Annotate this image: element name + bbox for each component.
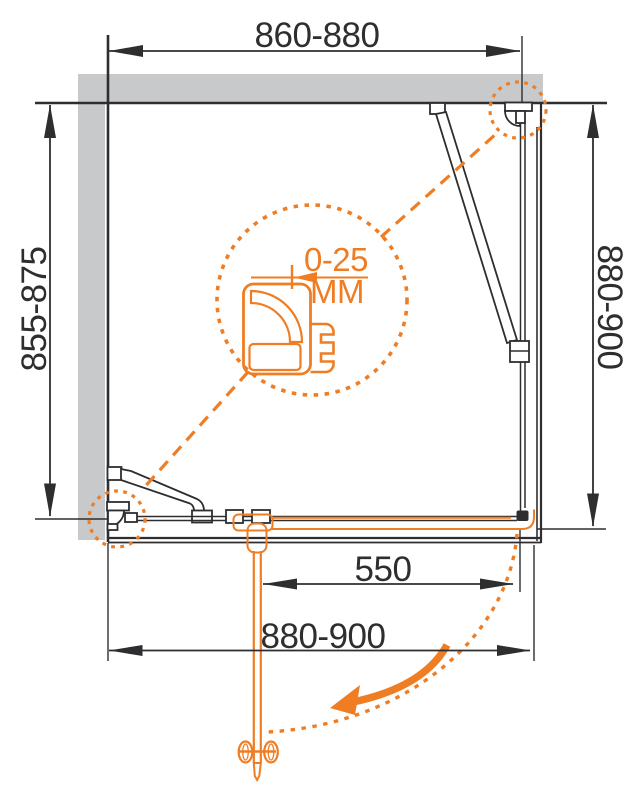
wall-top-band xyxy=(78,74,543,103)
dimension-arrowhead xyxy=(486,45,520,57)
adjustment-unit-label: ММ xyxy=(310,273,364,310)
dimension-arrowhead xyxy=(587,494,599,528)
profile-inner-block xyxy=(250,344,301,370)
dimension-bottom-width: 880-900 xyxy=(109,617,531,656)
door-closed-position xyxy=(272,510,534,530)
top-wall-hinge xyxy=(505,103,532,127)
bottom-brace-wall-bracket xyxy=(108,467,122,480)
pivot-clamp-right xyxy=(252,510,270,523)
drawing-canvas: 0-25 ММ 860-880 855-875 880-900 550 880-… xyxy=(0,0,641,800)
bottom-hinge-wall-plate xyxy=(107,502,129,511)
dimension-arrowhead xyxy=(44,484,56,518)
dim-label-right-depth: 880-900 xyxy=(590,245,629,370)
dimension-door-width: 550 xyxy=(263,550,514,590)
top-support-brace xyxy=(430,103,529,362)
swing-direction-arrowhead xyxy=(330,685,360,715)
top-brace-bar xyxy=(436,112,517,343)
detail-connector-bottom xyxy=(141,372,248,491)
profile-comb xyxy=(311,324,334,372)
door-bottom-tip xyxy=(254,763,261,780)
dimension-left-depth: 855-875 xyxy=(15,105,56,518)
dimension-right-depth: 880-900 xyxy=(587,105,629,528)
detail-callouts xyxy=(89,82,546,547)
dimension-arrowhead xyxy=(109,645,143,656)
bottom-brace-bar xyxy=(121,469,204,511)
side-glass-panel xyxy=(517,123,529,521)
dimension-arrowhead xyxy=(44,105,56,139)
wall-left-band xyxy=(78,74,105,540)
bottom-hinge-foot xyxy=(108,524,118,530)
dim-label-door-width: 550 xyxy=(355,550,412,589)
bottom-wall-hinge xyxy=(107,502,137,530)
dim-label-bottom-width: 880-900 xyxy=(261,617,386,656)
dimension-arrowhead xyxy=(587,105,599,139)
dimension-arrowhead xyxy=(264,579,298,590)
door-closed-bottom-edge xyxy=(272,510,534,530)
dim-label-left-depth: 855-875 xyxy=(15,247,54,372)
dimension-top-width: 860-880 xyxy=(109,16,520,57)
top-hinge-wall-plate xyxy=(505,103,532,112)
side-glass-bottom-bracket xyxy=(517,511,529,522)
profile-glass-fan xyxy=(251,291,302,342)
dimension-arrowhead xyxy=(497,645,531,656)
dimension-arrowhead xyxy=(109,45,143,57)
top-hinge-stem xyxy=(516,111,525,123)
dim-label-top-width: 860-880 xyxy=(255,16,380,55)
bottom-hinge-connector xyxy=(125,513,137,522)
profile-detail-drawing: 0-25 ММ xyxy=(244,241,369,374)
